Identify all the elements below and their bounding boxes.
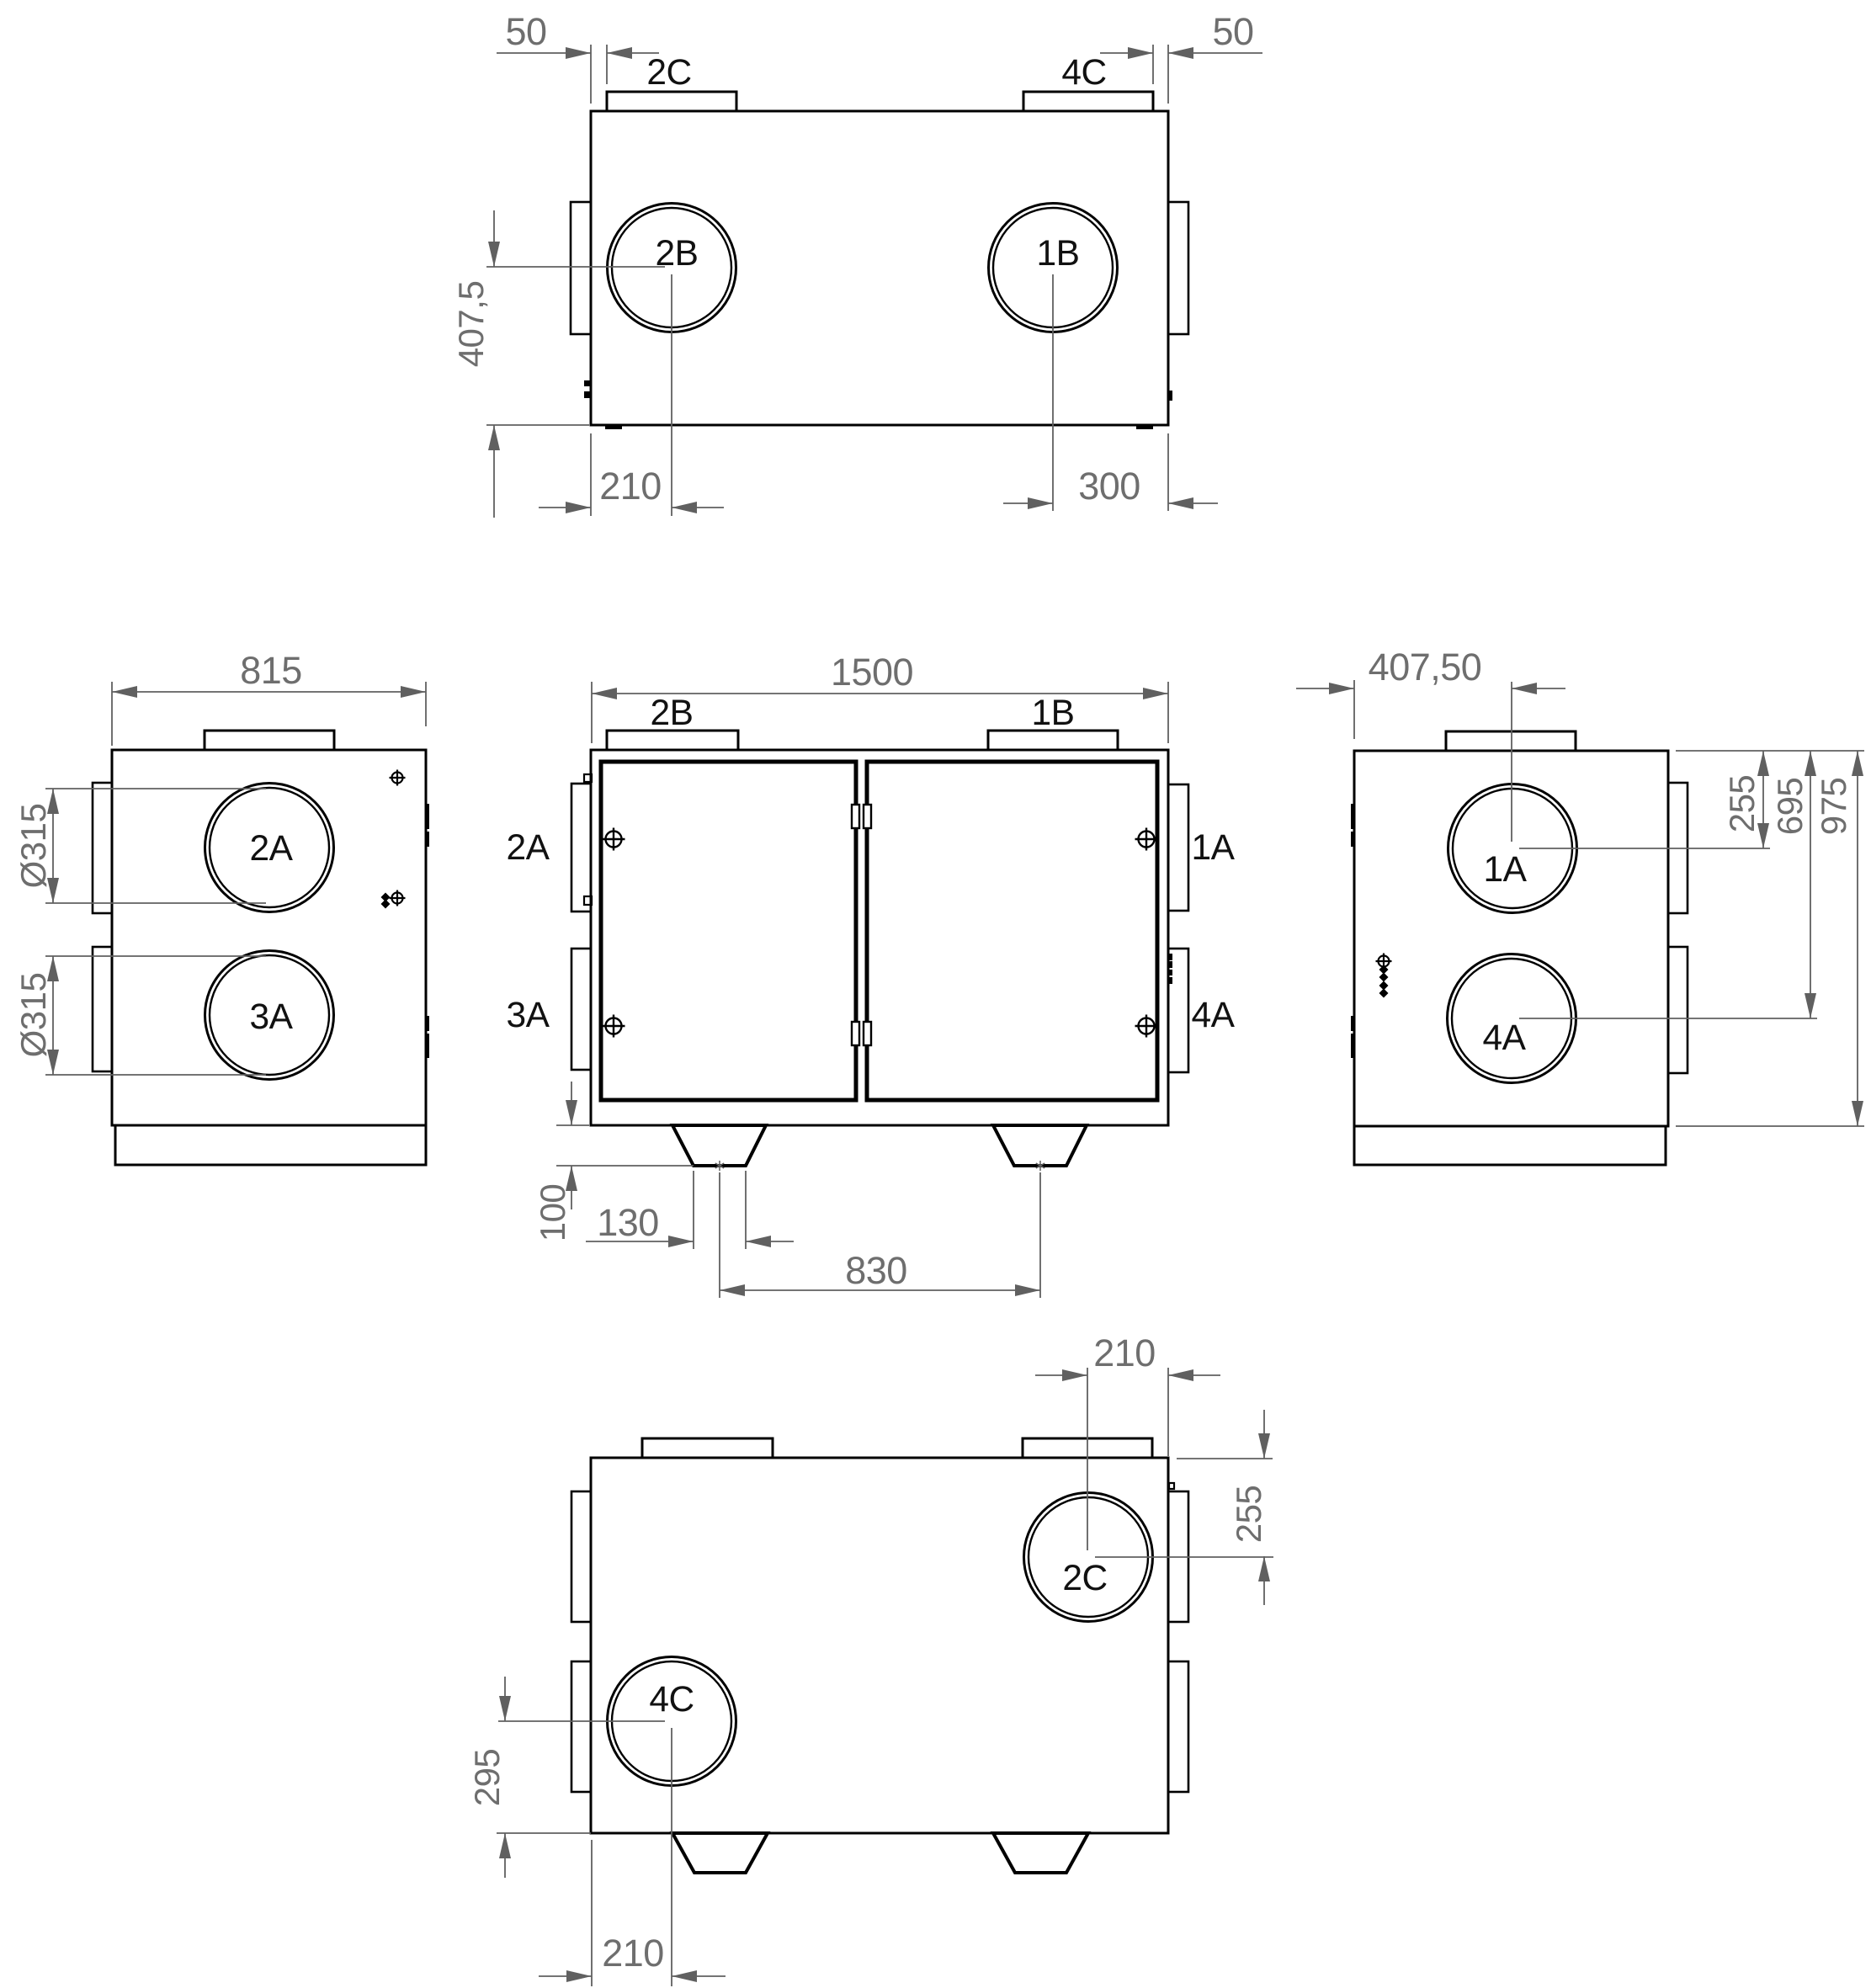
svg-text:695: 695 — [1770, 778, 1810, 836]
svg-text:2C: 2C — [1062, 1559, 1107, 1598]
svg-text:815: 815 — [240, 649, 302, 692]
svg-text:2A: 2A — [507, 828, 550, 868]
svg-text:4C: 4C — [649, 1680, 694, 1720]
svg-text:300: 300 — [1078, 465, 1140, 508]
svg-text:100: 100 — [533, 1184, 572, 1242]
svg-text:295: 295 — [467, 1749, 507, 1807]
svg-text:210: 210 — [602, 1932, 664, 1975]
svg-text:50: 50 — [1212, 10, 1253, 53]
svg-text:50: 50 — [505, 10, 546, 53]
svg-text:Ø315: Ø315 — [13, 804, 53, 889]
svg-text:4C: 4C — [1061, 53, 1106, 93]
svg-text:210: 210 — [1093, 1332, 1156, 1374]
svg-text:255: 255 — [1229, 1486, 1268, 1544]
svg-text:4A: 4A — [1192, 996, 1236, 1035]
svg-text:255: 255 — [1722, 775, 1762, 833]
svg-text:1B: 1B — [1037, 234, 1080, 274]
svg-text:2A: 2A — [250, 829, 294, 869]
svg-text:975: 975 — [1814, 778, 1853, 836]
svg-text:2B: 2B — [651, 694, 694, 733]
svg-text:407,5: 407,5 — [451, 281, 491, 368]
svg-text:1A: 1A — [1484, 850, 1528, 890]
svg-text:2C: 2C — [646, 53, 691, 93]
svg-text:3A: 3A — [507, 996, 550, 1035]
svg-text:4A: 4A — [1483, 1018, 1527, 1058]
svg-text:130: 130 — [597, 1201, 659, 1244]
svg-text:407,50: 407,50 — [1369, 646, 1482, 688]
svg-text:830: 830 — [845, 1249, 907, 1292]
svg-text:1500: 1500 — [831, 651, 913, 694]
svg-text:3A: 3A — [250, 997, 294, 1037]
svg-text:1B: 1B — [1032, 694, 1075, 733]
svg-text:1A: 1A — [1192, 828, 1236, 868]
svg-text:Ø315: Ø315 — [13, 973, 53, 1058]
svg-text:210: 210 — [599, 465, 662, 508]
svg-text:2B: 2B — [656, 234, 699, 274]
